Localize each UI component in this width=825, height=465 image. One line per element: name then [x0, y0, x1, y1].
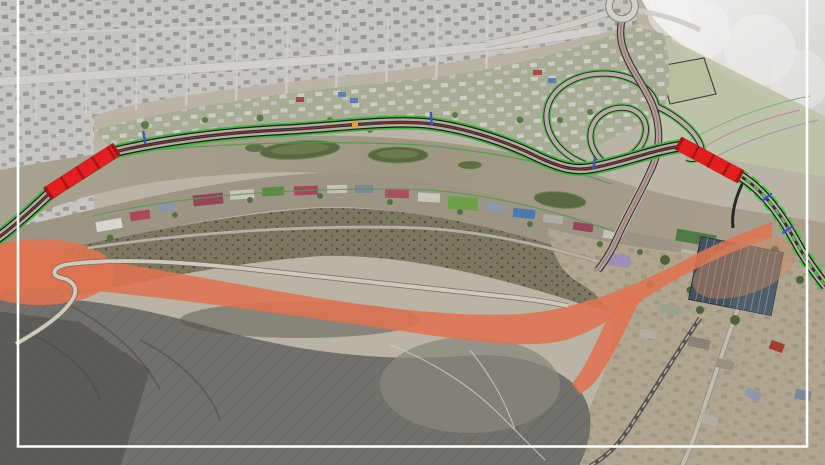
roadside-marker-orange — [352, 122, 358, 127]
map-canvas — [0, 0, 825, 465]
aerial-masterplan-map — [0, 0, 825, 465]
